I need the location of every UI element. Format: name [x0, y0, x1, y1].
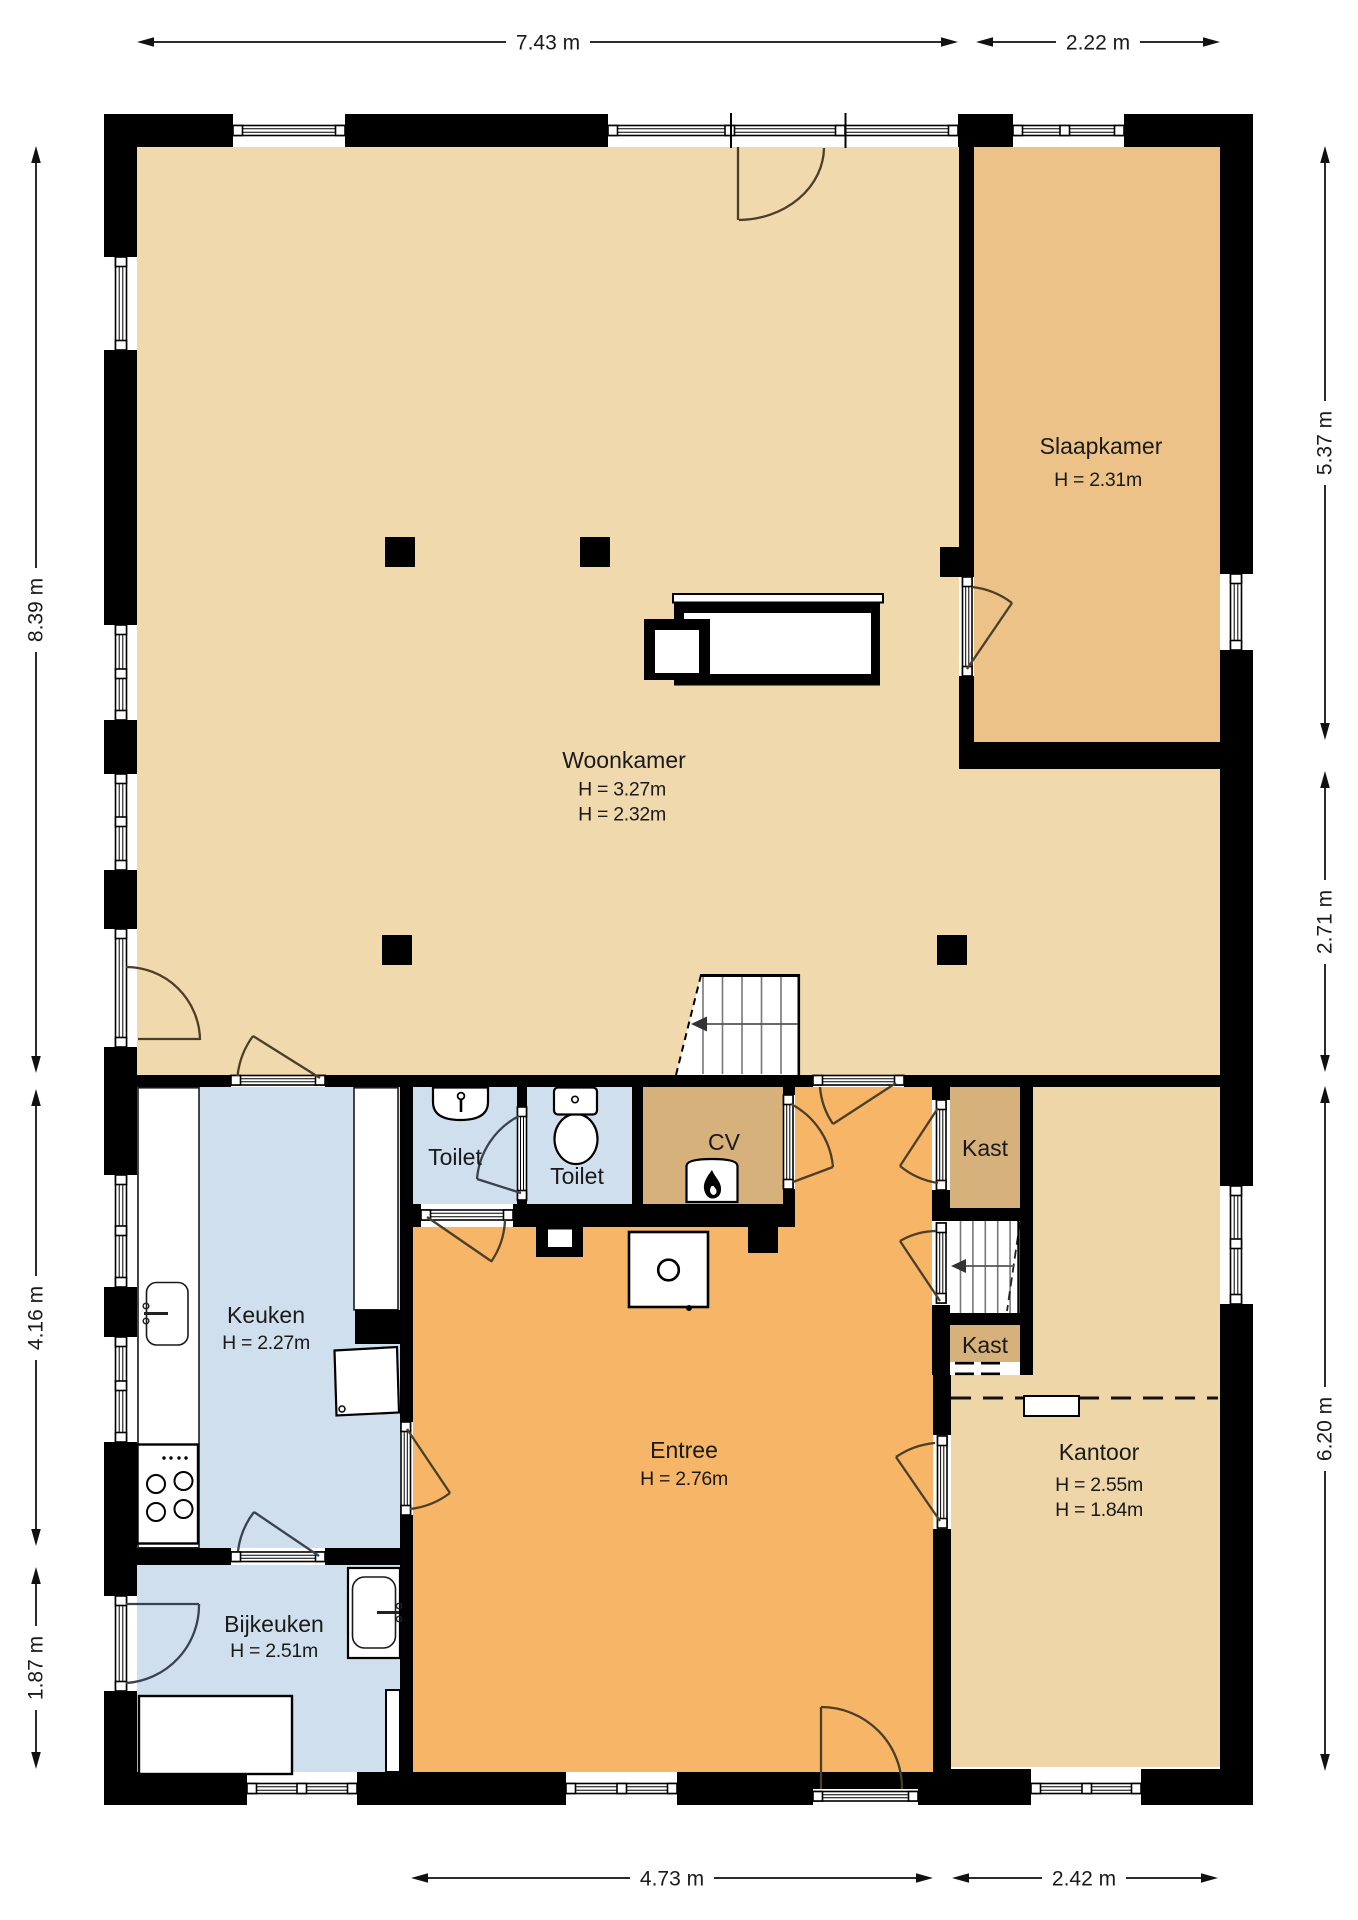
svg-text:H = 3.27m: H = 3.27m	[578, 779, 666, 801]
svg-text:Toilet: Toilet	[550, 1163, 604, 1189]
svg-text:Entree: Entree	[650, 1437, 718, 1463]
svg-text:2.42 m: 2.42 m	[1052, 1868, 1116, 1891]
svg-text:Kantoor: Kantoor	[1059, 1439, 1140, 1465]
svg-text:CV: CV	[708, 1129, 741, 1155]
svg-text:Kast: Kast	[962, 1332, 1009, 1358]
svg-text:7.43 m: 7.43 m	[516, 32, 580, 55]
svg-text:2.71 m: 2.71 m	[1314, 890, 1337, 954]
svg-text:Bijkeuken: Bijkeuken	[224, 1611, 324, 1637]
svg-text:2.22 m: 2.22 m	[1066, 32, 1130, 55]
svg-text:8.39 m: 8.39 m	[25, 578, 48, 642]
svg-text:Keuken: Keuken	[227, 1302, 305, 1328]
svg-text:H = 2.27m: H = 2.27m	[222, 1332, 310, 1354]
svg-text:Kast: Kast	[962, 1135, 1009, 1161]
svg-text:4.16 m: 4.16 m	[25, 1286, 48, 1350]
svg-text:Woonkamer: Woonkamer	[562, 747, 686, 773]
svg-text:4.73 m: 4.73 m	[640, 1868, 704, 1891]
svg-text:1.87 m: 1.87 m	[25, 1636, 48, 1700]
svg-text:H = 2.32m: H = 2.32m	[578, 804, 666, 826]
svg-text:H = 2.76m: H = 2.76m	[640, 1468, 728, 1490]
svg-text:H = 2.51m: H = 2.51m	[230, 1640, 318, 1662]
svg-text:Toilet: Toilet	[428, 1144, 482, 1170]
svg-text:H = 2.55m: H = 2.55m	[1055, 1474, 1143, 1496]
svg-text:5.37 m: 5.37 m	[1314, 411, 1337, 475]
svg-text:H = 1.84m: H = 1.84m	[1055, 1499, 1143, 1521]
svg-text:Slaapkamer: Slaapkamer	[1040, 433, 1163, 459]
svg-text:H = 2.31m: H = 2.31m	[1054, 469, 1142, 491]
svg-text:6.20 m: 6.20 m	[1314, 1397, 1337, 1461]
